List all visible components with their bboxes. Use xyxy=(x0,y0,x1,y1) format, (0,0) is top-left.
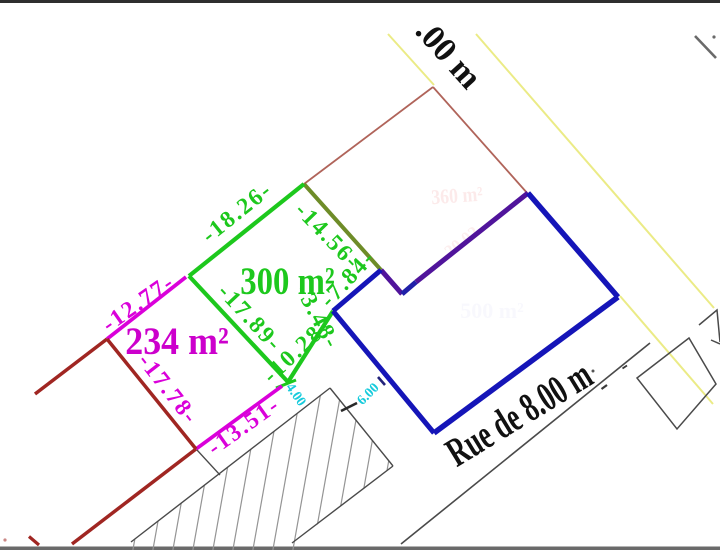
svg-text:-13.51-: -13.51- xyxy=(203,392,285,461)
svg-text:360 m²: 360 m² xyxy=(431,183,484,209)
svg-text:.00 m: .00 m xyxy=(408,13,489,97)
svg-text:6.00: 6.00 xyxy=(355,381,383,409)
svg-text:500 m²: 500 m² xyxy=(460,298,524,323)
